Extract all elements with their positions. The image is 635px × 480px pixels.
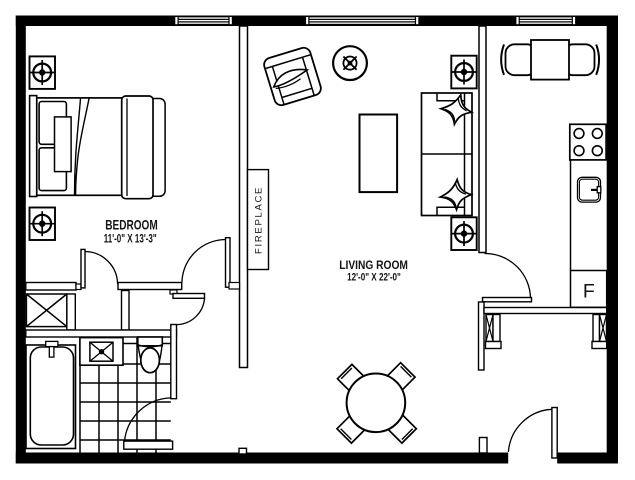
svg-text:F: F	[583, 280, 595, 302]
svg-text:11'-0" X 13'-3": 11'-0" X 13'-3"	[104, 231, 157, 245]
svg-text:FIREPLACE: FIREPLACE	[254, 186, 265, 254]
svg-text:LIVING ROOM: LIVING ROOM	[339, 258, 408, 272]
svg-text:BEDROOM: BEDROOM	[105, 218, 158, 233]
svg-text:12'-0" X 22'-0": 12'-0" X 22'-0"	[347, 271, 401, 283]
